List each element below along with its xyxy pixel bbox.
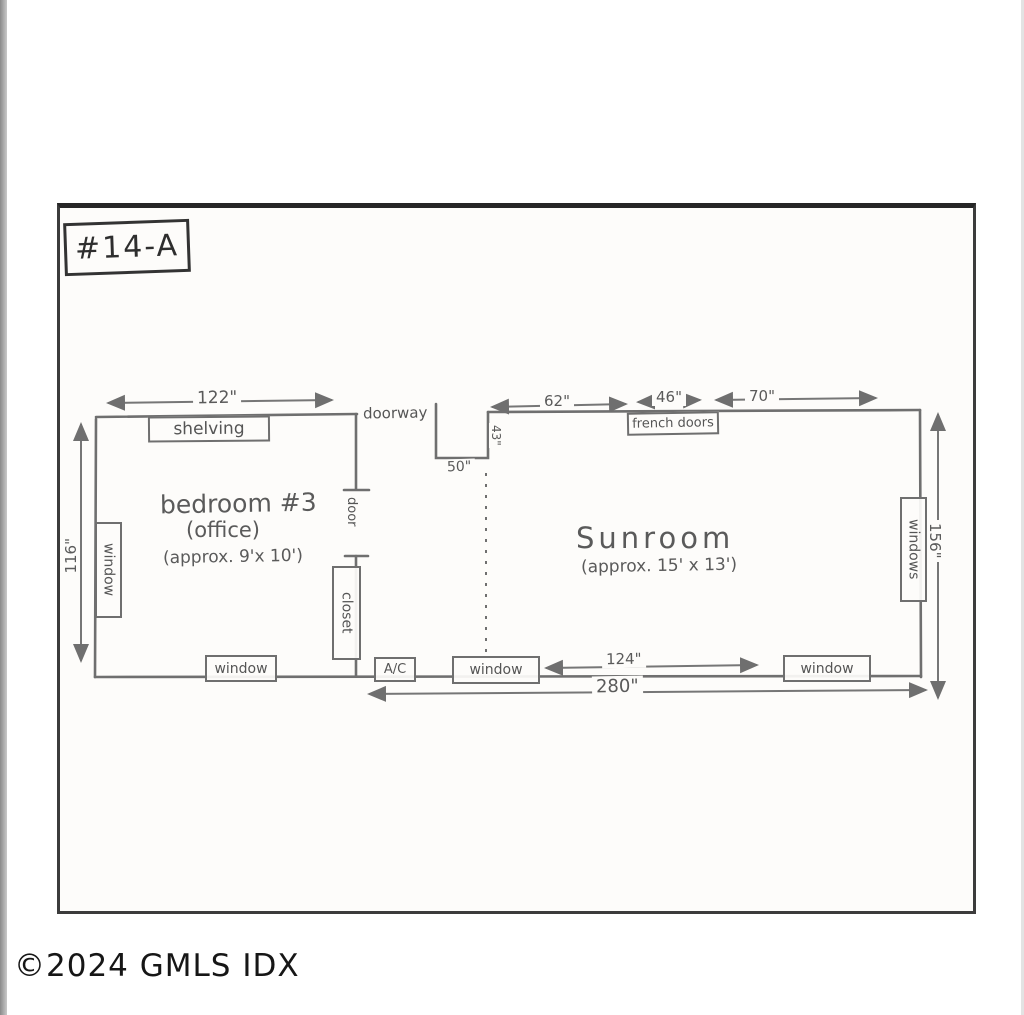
dim-bottom-sunroom: 124" (602, 650, 646, 669)
watermark: ©2024 GMLS IDX (14, 948, 300, 984)
dim-top-sunroom-1: 62" (540, 392, 574, 410)
bedroom-name: bedroom #3 (160, 488, 317, 520)
window-bottom-sunroom-right-label: window (783, 655, 871, 682)
closet-label: closet (332, 566, 361, 660)
window-bottom-sunroom-left-label: window (452, 656, 540, 684)
window-bottom-bedroom-label: window (205, 655, 277, 682)
sheet-number-label: #14-A (63, 219, 191, 276)
sunroom-name: Sunroom (576, 521, 734, 555)
bedroom-subname: (office) (186, 518, 260, 542)
windows-right-label: windows (900, 497, 927, 602)
floorplan-photo: #14-A shelving doorway french doors 122"… (0, 0, 1024, 1015)
dim-bottom-total: 280" (592, 676, 643, 698)
window-left-label: window (95, 522, 122, 618)
dim-left-height: 116" (62, 535, 80, 577)
plan-linework (0, 0, 1024, 1015)
ac-label: A/C (374, 657, 416, 682)
doorway-label: doorway (363, 403, 428, 422)
bedroom-approx: (approx. 9'x 10') (163, 546, 303, 568)
door-label: door (344, 497, 359, 527)
french-doors-label: french doors (627, 411, 719, 436)
dim-top-sunroom-3: 70" (745, 387, 779, 405)
shelving-label: shelving (148, 415, 270, 442)
dim-notch-depth: 43" (489, 423, 503, 448)
dim-top-bedroom: 122" (193, 388, 242, 409)
dim-right-height: 156" (926, 520, 944, 562)
sunroom-approx: (approx. 15' x 13') (581, 555, 737, 578)
dim-top-sunroom-2: 46" (652, 388, 686, 406)
dim-notch-width: 50" (443, 458, 476, 475)
